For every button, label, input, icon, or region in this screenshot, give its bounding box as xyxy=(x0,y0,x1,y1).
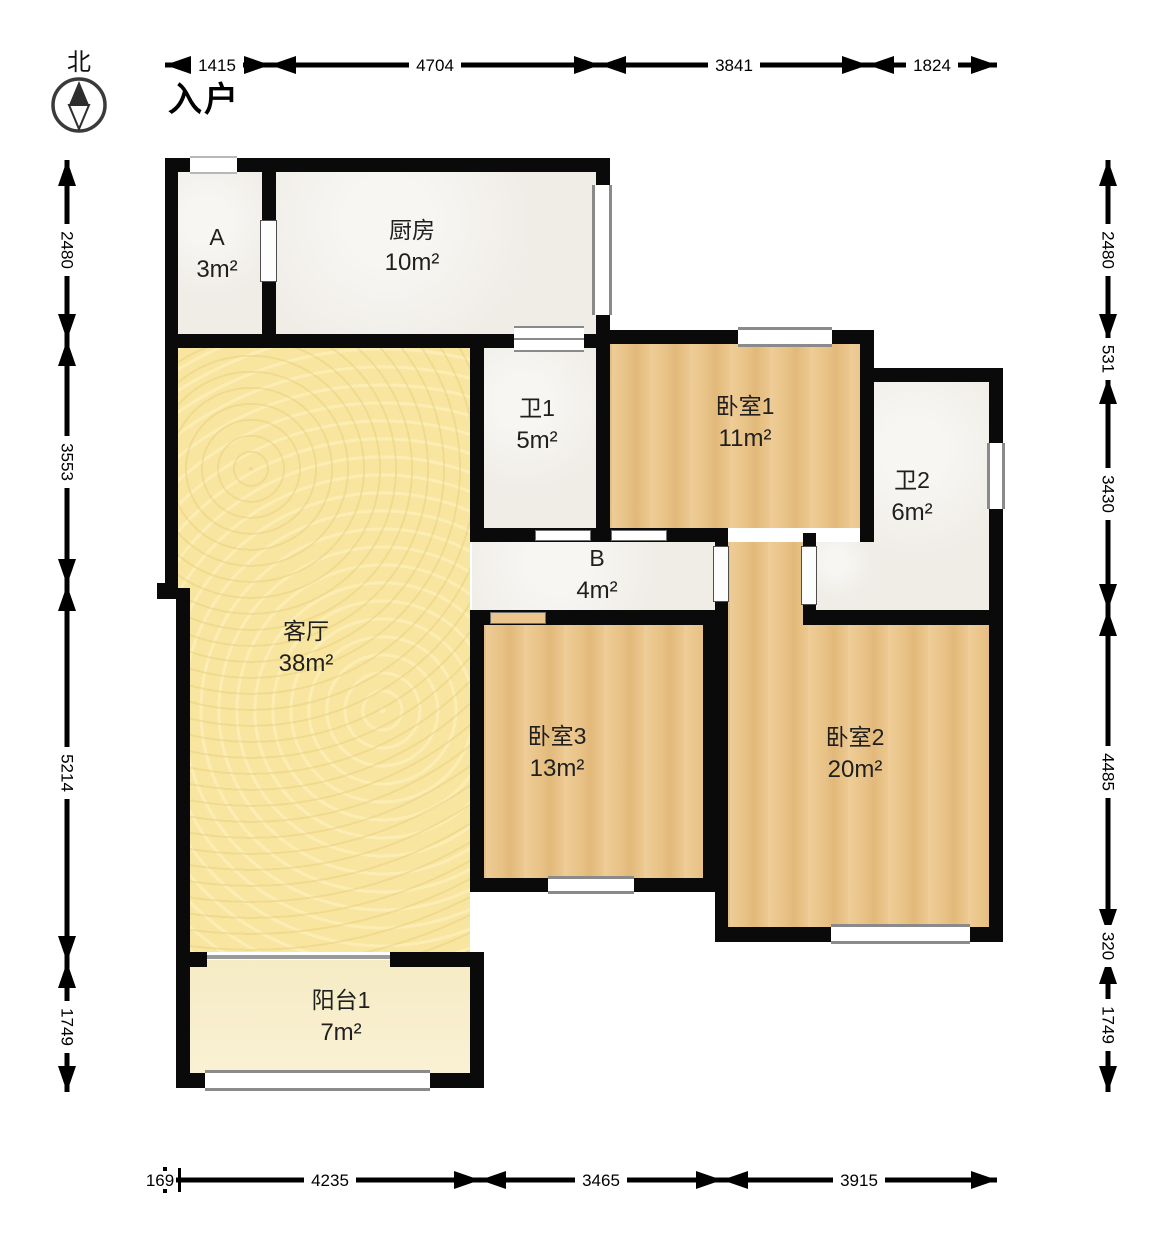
dim-value: 3553 xyxy=(58,443,77,481)
floor-plan: 北 入户 xyxy=(0,0,1162,1245)
dim-value: 3430 xyxy=(1099,475,1118,513)
dim-value: 4235 xyxy=(311,1171,349,1190)
dim-value: 4704 xyxy=(416,56,454,75)
sliding-door-track xyxy=(514,338,584,340)
wall-bedroom2-right xyxy=(989,610,1003,942)
bedroom2-window xyxy=(831,924,970,944)
living-balcony-opening xyxy=(207,955,390,959)
dimension-line-right: 2480 531 3430 4485 320 1749 xyxy=(1082,148,1138,1108)
door-a-kitchen xyxy=(260,220,277,282)
kitchen-label: 厨房 10m² xyxy=(385,215,440,279)
wall-bedroom2-entry-right-top xyxy=(803,533,816,547)
bedroom3-window xyxy=(548,876,634,894)
dim-value: 531 xyxy=(1099,345,1118,373)
bath1-label: 卫1 5m² xyxy=(516,393,557,457)
wall-bedroom2-left xyxy=(715,610,728,942)
compass-icon xyxy=(48,74,110,136)
dim-value: 1749 xyxy=(1099,1006,1118,1044)
dim-value: 2480 xyxy=(58,231,77,269)
wall-bedroom3-left xyxy=(470,610,484,892)
dim-value: 3841 xyxy=(715,56,753,75)
dim-value: 1749 xyxy=(58,1008,77,1046)
north-label: 北 xyxy=(59,42,99,77)
bedroom3-floor xyxy=(484,625,703,878)
dim-value: 3915 xyxy=(840,1171,878,1190)
dimension-line-left: 2480 3553 5214 1749 xyxy=(40,148,94,1108)
bedroom1-label: 卧室1 11m² xyxy=(716,391,775,455)
kitchen-window xyxy=(592,185,612,315)
bedroom2-entry-floor xyxy=(728,542,803,625)
bath2-window xyxy=(987,443,1005,509)
dim-value: 2480 xyxy=(1099,231,1118,269)
bath2-floor-ext xyxy=(816,542,874,610)
dim-value: 320 xyxy=(1099,932,1118,960)
dim-value: 169 xyxy=(146,1171,174,1190)
dim-value: 5214 xyxy=(58,754,77,792)
room-a-label: A 3m² xyxy=(196,222,237,286)
dim-arrows xyxy=(165,56,997,74)
dimension-line-bottom: 169 4235 3465 3915 xyxy=(140,1152,1010,1208)
wall-left-upper xyxy=(165,158,178,590)
hall-b-label: B 4m² xyxy=(576,543,617,607)
wall-left-lower xyxy=(176,588,190,1088)
bath2-door xyxy=(801,546,817,605)
dim-value: 1415 xyxy=(198,56,236,75)
wall-bath1-bedroom1 xyxy=(596,334,610,542)
bath1-door-opening xyxy=(535,530,591,541)
dim-tick xyxy=(178,1168,181,1192)
bedroom1-door-opening xyxy=(611,530,667,541)
wall-bedroom1-right xyxy=(860,330,874,542)
wall-left-step xyxy=(157,583,178,599)
bedroom3-door-opening xyxy=(490,612,546,624)
bedroom2-door xyxy=(713,546,729,602)
wall-balcony-right xyxy=(470,952,484,1088)
wall-bath2-bottom xyxy=(803,610,1003,625)
wall-bedroom2-entry-right-bottom xyxy=(803,603,816,625)
bedroom3-label: 卧室3 13m² xyxy=(528,721,587,785)
entry-door-opening xyxy=(190,156,237,174)
bedroom1-window xyxy=(738,327,832,347)
dimension-line-top: 1415 4704 3841 1824 xyxy=(140,38,1010,92)
balcony-label: 阳台1 7m² xyxy=(312,985,371,1049)
living-room-label: 客厅 38m² xyxy=(279,616,334,680)
balcony-window xyxy=(205,1070,430,1091)
dim-value: 1824 xyxy=(913,56,951,75)
kitchen-sliding-door xyxy=(514,326,584,352)
bedroom2-label: 卧室2 20m² xyxy=(826,722,885,786)
wall-bath2-top xyxy=(862,368,1003,382)
bath2-label: 卫2 6m² xyxy=(891,465,932,529)
wall-bath1-left xyxy=(470,334,484,542)
dim-value: 4485 xyxy=(1099,753,1118,791)
dim-value: 3465 xyxy=(582,1171,620,1190)
